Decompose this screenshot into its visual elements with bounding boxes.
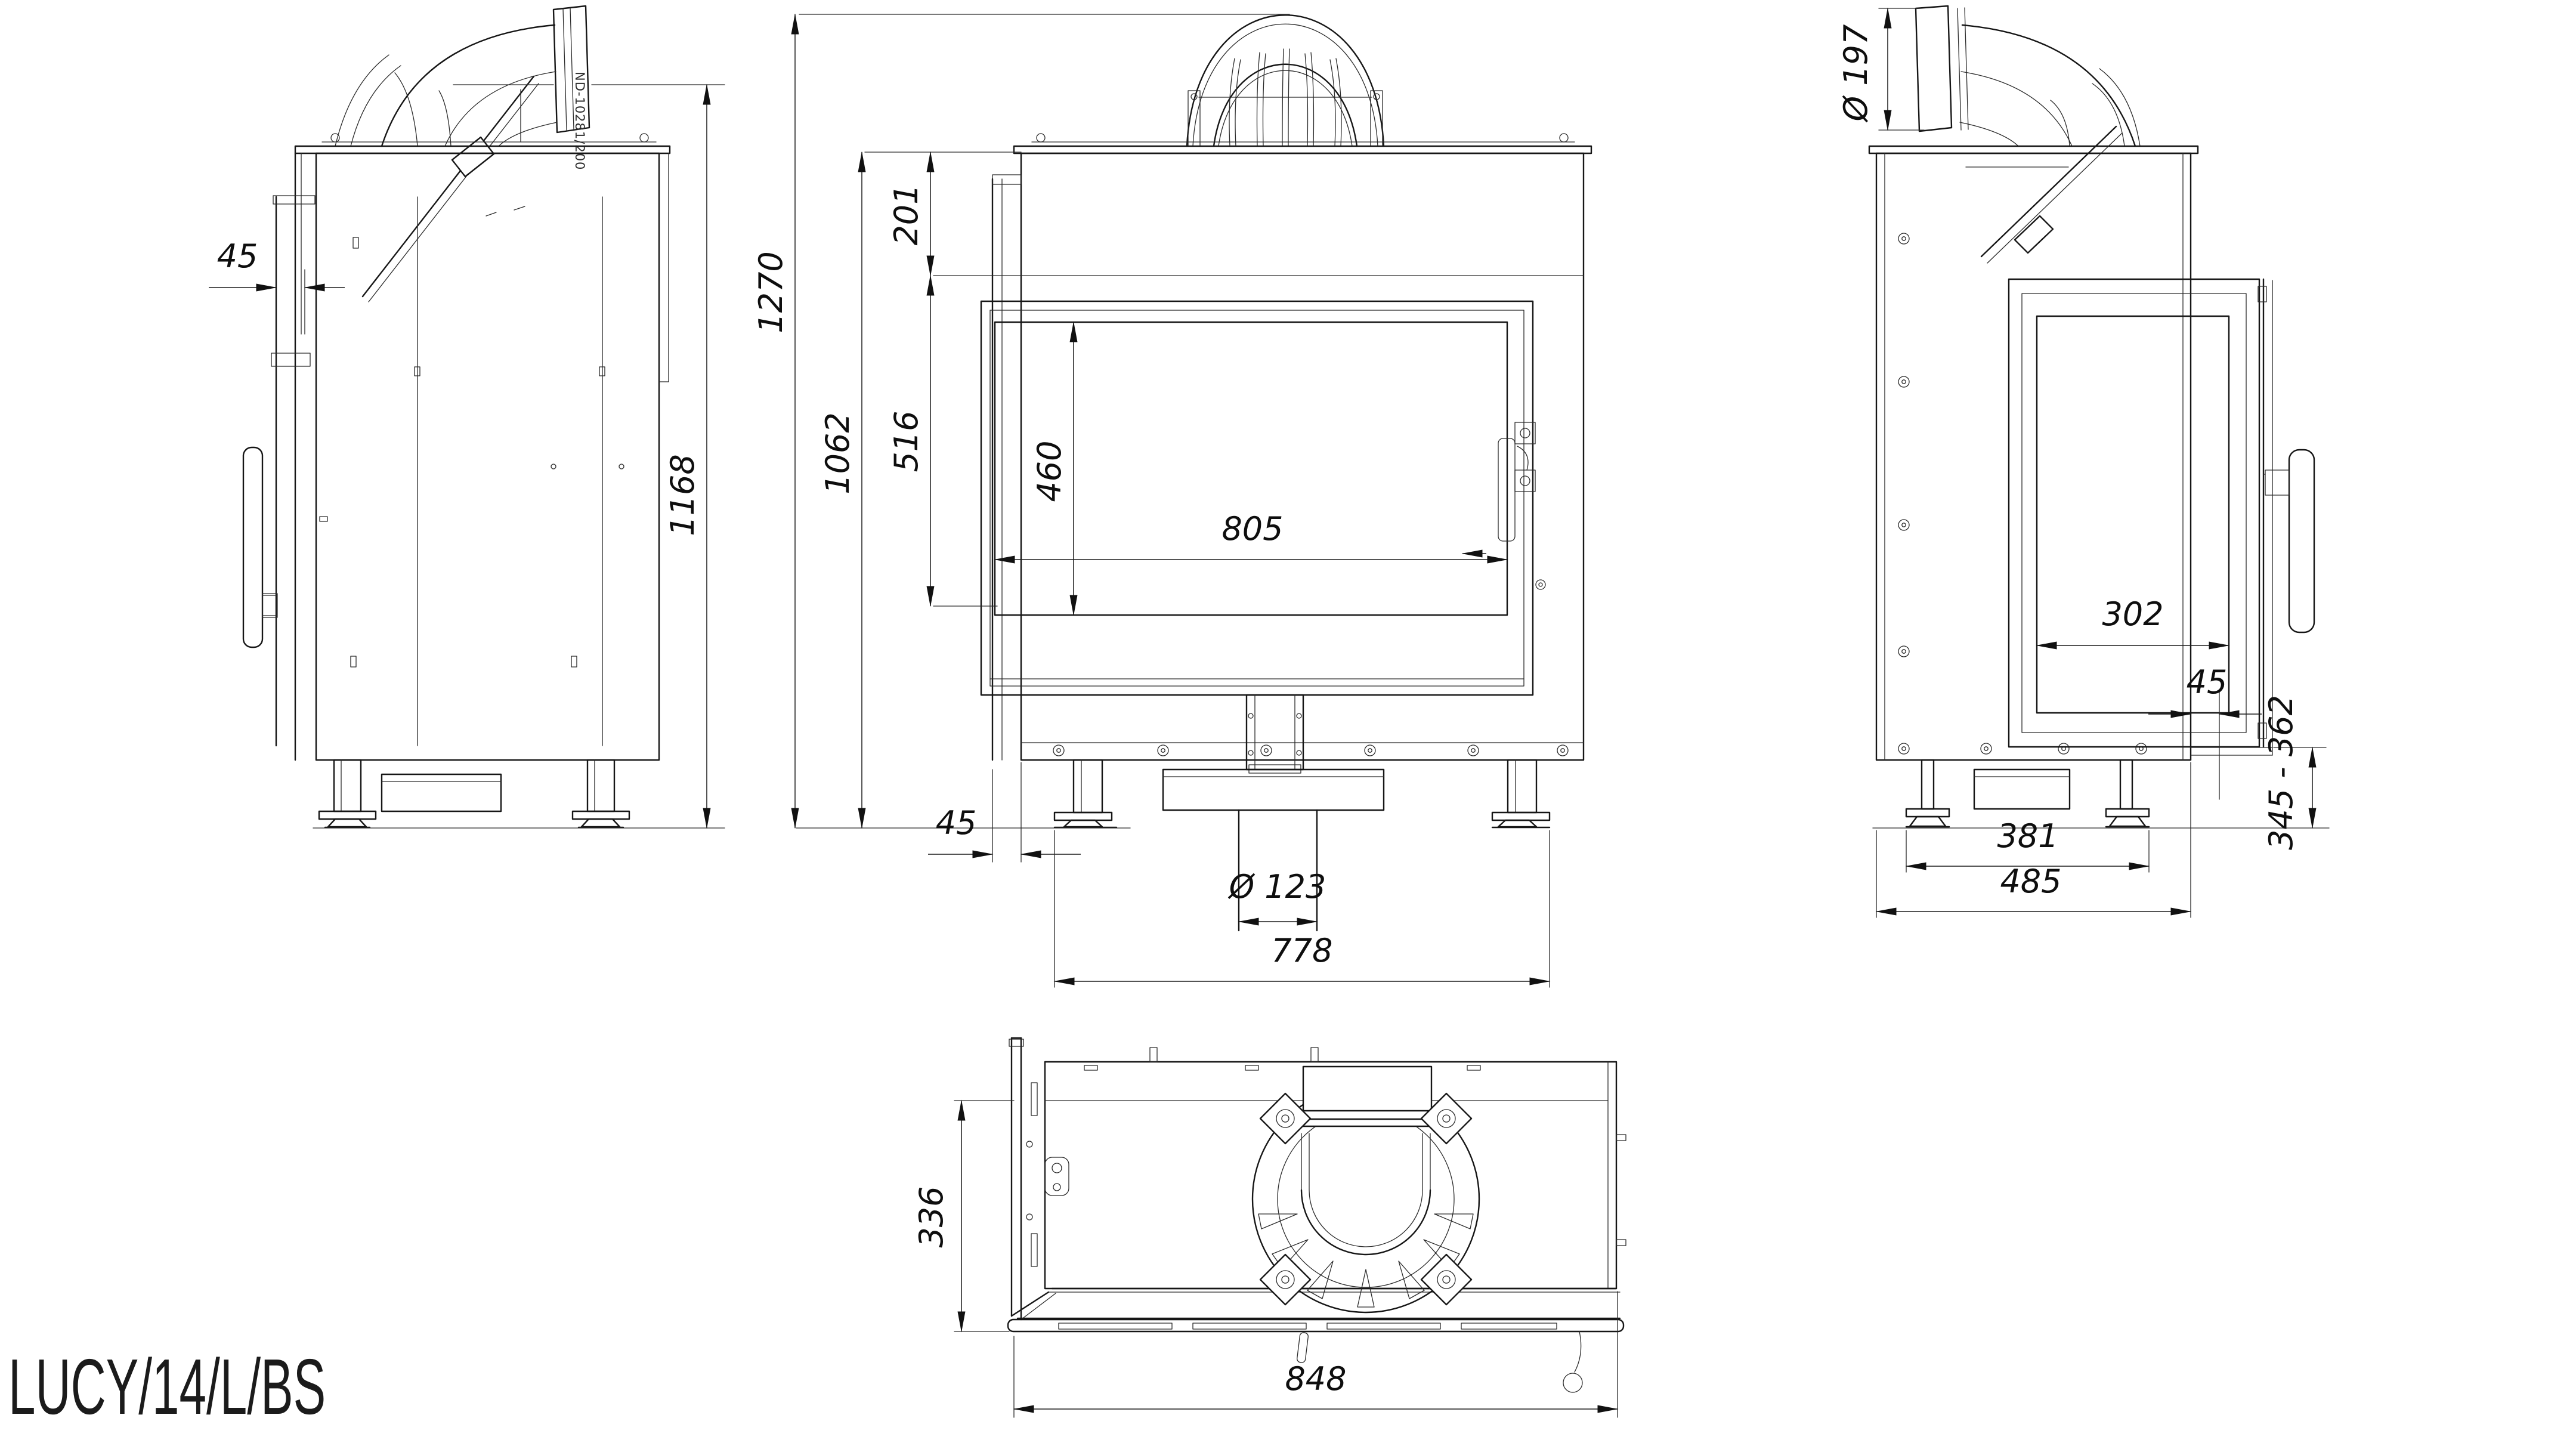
technical-drawing-page: ND-10281/200 xyxy=(0,0,2576,1449)
flue-collar-icon xyxy=(1253,1067,1479,1312)
svg-text:201: 201 xyxy=(887,184,925,245)
svg-text:778: 778 xyxy=(1271,932,1332,969)
dim-right-base-height: 345 - 362 xyxy=(2262,695,2326,850)
svg-text:805: 805 xyxy=(1221,510,1283,548)
svg-text:1168: 1168 xyxy=(664,454,701,536)
dim-left-overall-height: 1168 xyxy=(592,85,725,828)
dim-front-air-inlet: Ø 123 xyxy=(1228,868,1326,922)
dim-right-glass-width: 302 xyxy=(2037,595,2229,645)
front-view: 1270 1062 201 516 460 805 xyxy=(752,14,1591,987)
screw-icons-right xyxy=(1898,233,2147,754)
svg-text:Ø 123: Ø 123 xyxy=(1228,868,1326,906)
svg-text:848: 848 xyxy=(1285,1360,1346,1398)
dim-right-flue-diameter: Ø 197 xyxy=(1837,8,1924,130)
svg-text:1062: 1062 xyxy=(819,412,856,494)
dim-right-door-offset: 45 xyxy=(2148,663,2262,714)
damper-lever-icon xyxy=(1297,1332,1309,1363)
svg-text:381: 381 xyxy=(1997,817,2058,855)
flue-elbow-right-icon xyxy=(1916,6,2140,263)
left-body xyxy=(271,134,670,760)
dim-top-side-depth: 336 xyxy=(913,1101,1014,1331)
dim-front-body-height: 1062 xyxy=(819,152,1021,828)
dim-top-overall-width: 848 xyxy=(1014,1292,1618,1417)
door-handle-right-icon xyxy=(2263,450,2314,632)
svg-text:45: 45 xyxy=(2187,663,2228,701)
dim-front-top-to-door: 201 xyxy=(887,152,1021,276)
svg-text:336: 336 xyxy=(913,1186,950,1247)
dim-front-feet-spacing: 778 xyxy=(1054,830,1550,987)
flue-dome-icon xyxy=(1187,15,1384,146)
svg-text:516: 516 xyxy=(887,410,925,472)
svg-text:485: 485 xyxy=(2000,863,2061,900)
dim-front-glass-height: 460 xyxy=(1031,322,1074,615)
model-title-group: LUCY/14/L/BS xyxy=(8,1343,326,1431)
model-title: LUCY/14/L/BS xyxy=(8,1343,326,1431)
svg-text:45: 45 xyxy=(936,804,977,842)
left-side-view: ND-10281/200 xyxy=(209,6,725,828)
svg-text:45: 45 xyxy=(217,237,258,275)
top-side-band xyxy=(1009,1038,1069,1320)
svg-text:302: 302 xyxy=(2102,595,2163,633)
pull-ring-icon xyxy=(1563,1331,1582,1392)
flue-part-number-left: ND-10281/200 xyxy=(573,72,587,170)
svg-text:345 - 362: 345 - 362 xyxy=(2262,695,2300,850)
svg-text:1270: 1270 xyxy=(752,251,790,333)
door-handle-left-icon xyxy=(243,447,277,647)
fireplace-dimension-drawing: ND-10281/200 xyxy=(0,0,2576,1449)
front-body xyxy=(992,134,1591,760)
door-latch-icon xyxy=(1498,422,1535,541)
screw-icons-front xyxy=(1053,580,1568,756)
dim-front-glass-width: 805 xyxy=(995,510,1507,560)
svg-text:Ø 197: Ø 197 xyxy=(1837,24,1875,123)
top-view: 336 848 xyxy=(913,1038,1626,1417)
right-side-view: Ø 197 302 45 345 - 362 381 485 xyxy=(1837,6,2329,917)
svg-text:460: 460 xyxy=(1031,440,1068,502)
left-legs xyxy=(319,760,629,827)
